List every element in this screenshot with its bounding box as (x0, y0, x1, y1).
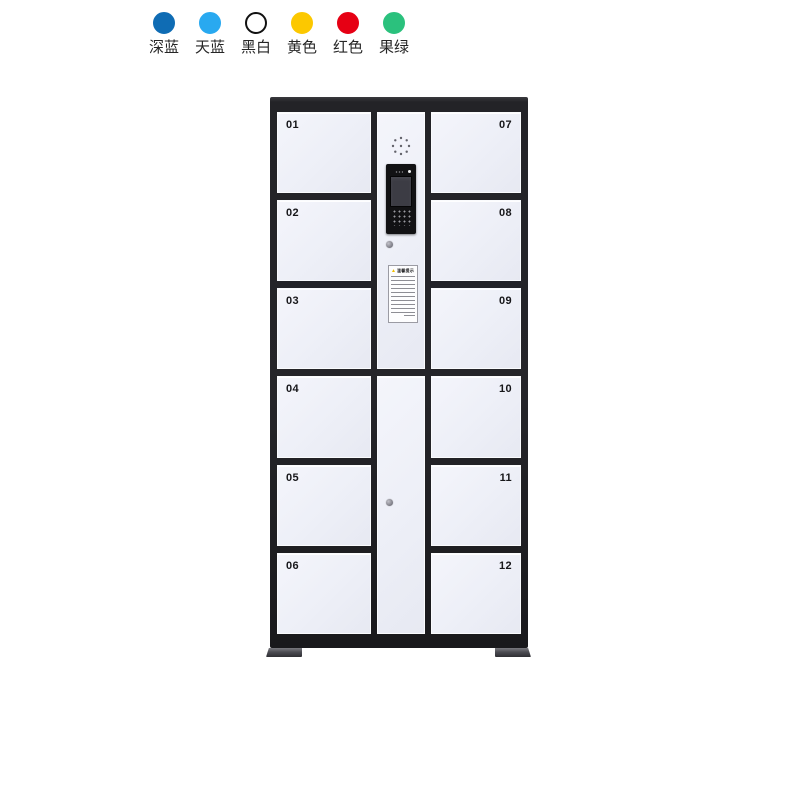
cabinet-foot-right (495, 648, 531, 657)
locker-door-04: 04 (277, 376, 371, 457)
color-swatch-icon[interactable] (383, 12, 405, 34)
color-option-label: 黑白 (241, 40, 271, 55)
locker-door-02: 02 (277, 200, 371, 281)
color-option-label: 深蓝 (149, 40, 179, 55)
door-number: 08 (499, 207, 512, 219)
device-keypad[interactable] (392, 209, 411, 226)
color-option-yellow[interactable]: 黄色 (279, 12, 325, 55)
color-swatch-icon[interactable] (199, 12, 221, 34)
locker-door-11: 11 (431, 465, 521, 546)
color-option-row: 深蓝 天蓝 黑白 黄色 红色 果绿 (141, 12, 417, 55)
locker-door-05: 05 (277, 465, 371, 546)
door-number: 02 (286, 207, 299, 219)
lock-icon[interactable] (386, 499, 393, 506)
locker-door-01: 01 (277, 112, 371, 193)
color-swatch-icon[interactable] (245, 12, 267, 34)
indicator-dots (395, 171, 403, 173)
door-number: 04 (286, 383, 299, 395)
master-door (377, 376, 425, 634)
door-number: 07 (499, 119, 512, 131)
door-number: 10 (499, 383, 512, 395)
color-swatch-icon[interactable] (291, 12, 313, 34)
color-option-black-white[interactable]: 黑白 (233, 12, 279, 55)
locker-door-09: 09 (431, 288, 521, 369)
warning-signature-line (404, 315, 415, 316)
locker-door-06: 06 (277, 553, 371, 634)
door-number: 01 (286, 119, 299, 131)
color-option-fruit-green[interactable]: 果绿 (371, 12, 417, 55)
color-swatch-icon[interactable] (337, 12, 359, 34)
color-option-label: 红色 (333, 40, 363, 55)
warning-text-lines (391, 276, 415, 314)
color-option-deep-blue[interactable]: 深蓝 (141, 12, 187, 55)
locker-door-08: 08 (431, 200, 521, 281)
door-number: 03 (286, 295, 299, 307)
locker-door-10: 10 (431, 376, 521, 457)
lock-icon[interactable] (386, 241, 393, 248)
cabinet-foot-left (266, 648, 302, 657)
intercom-keypad-device[interactable] (386, 164, 416, 234)
door-number: 11 (500, 472, 512, 484)
locker-door-grid: 01 02 03 04 05 06 (277, 112, 521, 634)
locker-door-12: 12 (431, 553, 521, 634)
color-option-label: 果绿 (379, 40, 409, 55)
locker-cabinet: 01 02 03 04 05 06 (270, 97, 528, 648)
color-option-label: 天蓝 (195, 40, 225, 55)
speaker-grille-icon (387, 133, 415, 159)
locker-door-07: 07 (431, 112, 521, 193)
control-panel: ▲ 温馨提示 (377, 112, 425, 369)
door-number: 12 (499, 560, 512, 572)
locker-door-03: 03 (277, 288, 371, 369)
color-option-red[interactable]: 红色 (325, 12, 371, 55)
color-option-sky-blue[interactable]: 天蓝 (187, 12, 233, 55)
warning-triangle-icon: ▲ (391, 269, 396, 274)
door-number: 09 (499, 295, 512, 307)
color-swatch-icon[interactable] (153, 12, 175, 34)
device-screen (390, 176, 412, 207)
warning-label: ▲ 温馨提示 (388, 265, 418, 323)
camera-icon (408, 170, 411, 173)
door-number: 06 (286, 560, 299, 572)
door-number: 05 (286, 472, 299, 484)
warning-title: 温馨提示 (397, 268, 414, 274)
product-page: 深蓝 天蓝 黑白 黄色 红色 果绿 01 02 (0, 0, 800, 800)
color-option-label: 黄色 (287, 40, 317, 55)
